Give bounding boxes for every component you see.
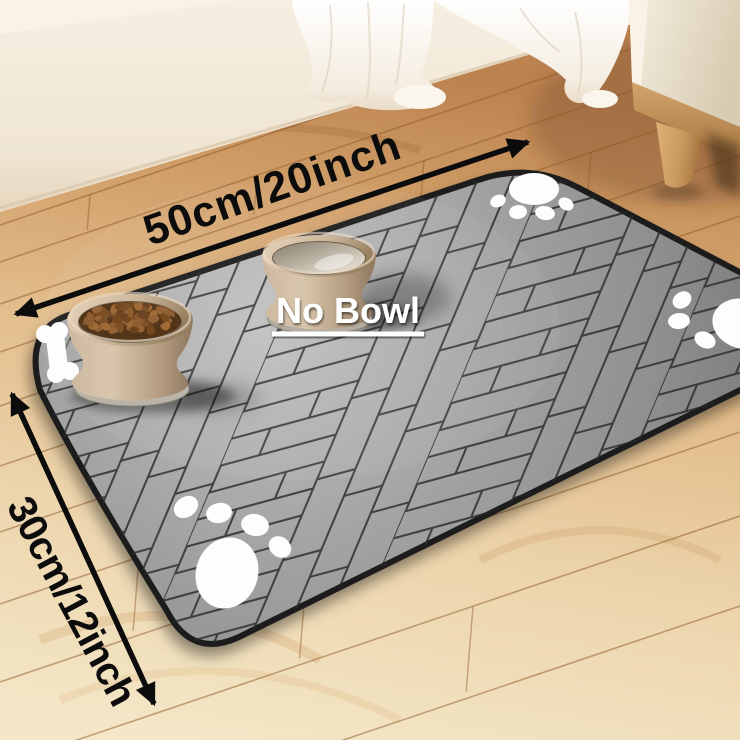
product-photo-pet-feeding-mat: 50cm/20inch 30cm/12inch No Bowl — [0, 0, 740, 740]
curtain-pooled-fabric — [394, 85, 446, 109]
no-bowl-callout: No Bowl — [272, 290, 424, 334]
curtain-pooled-fabric — [582, 90, 618, 108]
scene-canvas: 50cm/20inch 30cm/12inch No Bowl — [0, 0, 740, 740]
no-bowl-label: No Bowl — [276, 290, 420, 331]
